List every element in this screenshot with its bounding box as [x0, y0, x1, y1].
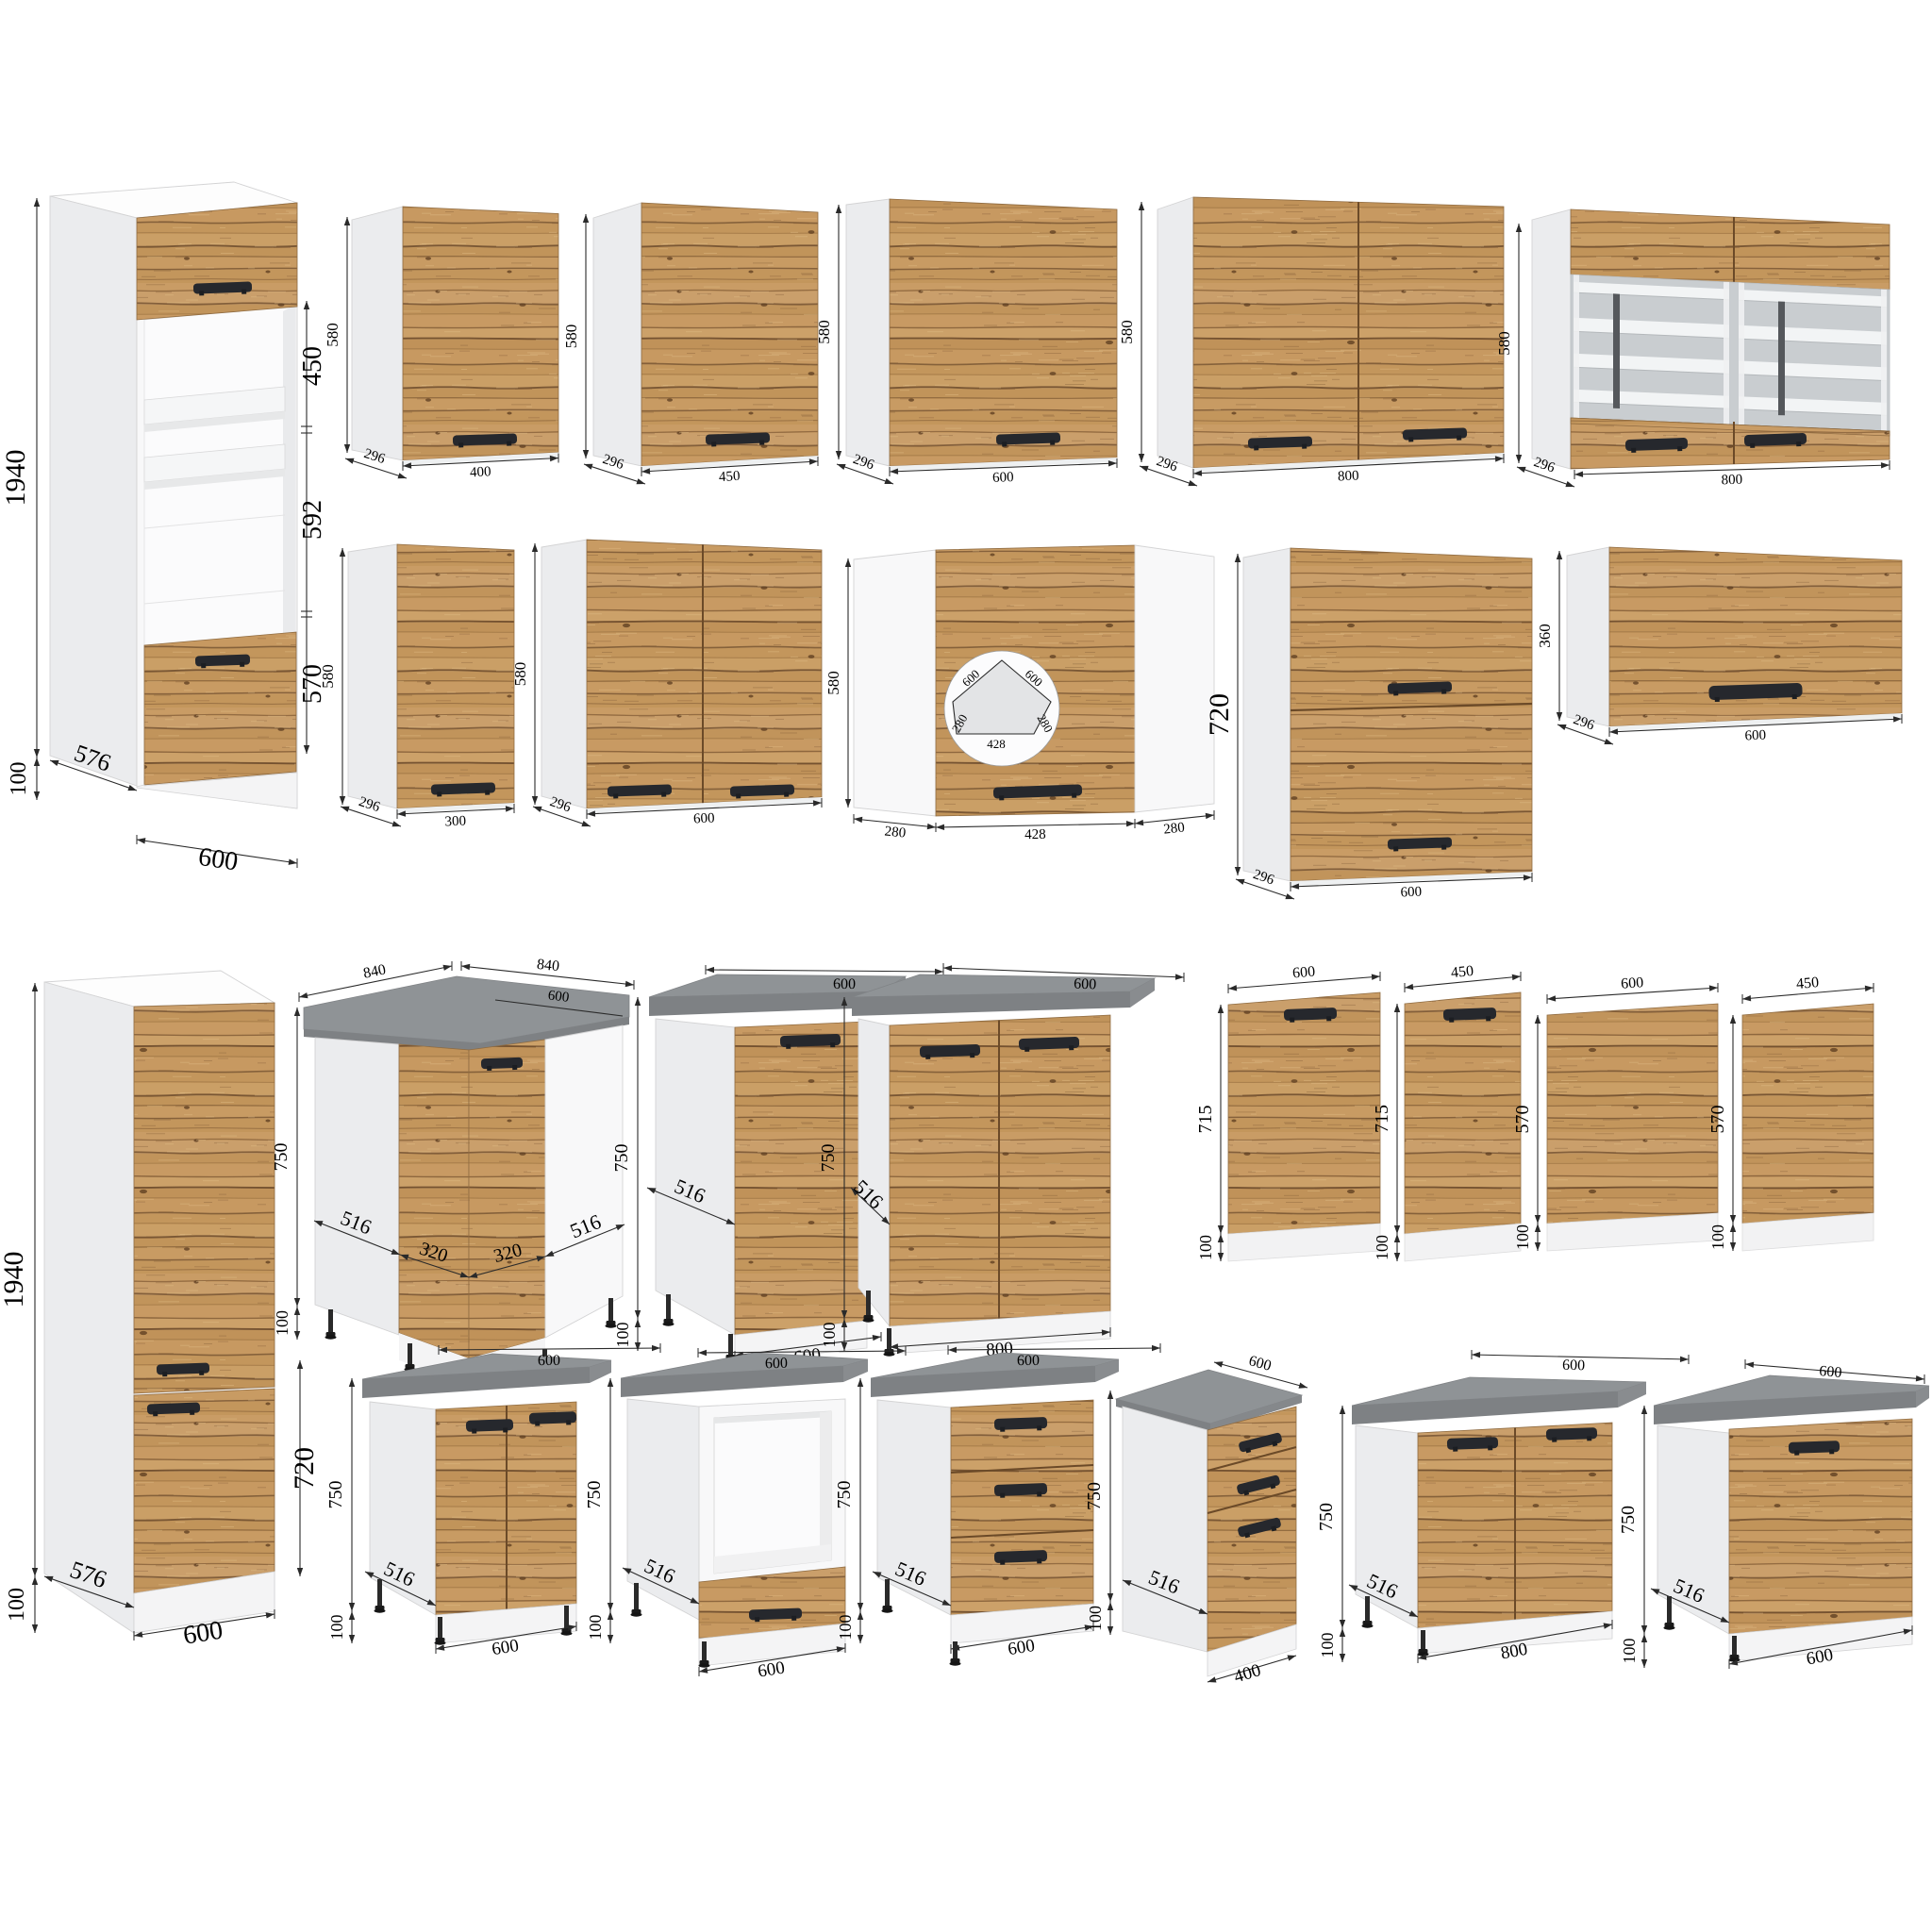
svg-text:750: 750 [1316, 1503, 1337, 1531]
svg-text:750: 750 [834, 1481, 855, 1509]
svg-text:100: 100 [820, 1323, 839, 1348]
svg-text:600: 600 [491, 1636, 520, 1659]
svg-text:750: 750 [1084, 1482, 1105, 1510]
svg-text:600: 600 [1291, 964, 1315, 982]
svg-text:580: 580 [511, 662, 529, 687]
svg-text:400: 400 [470, 464, 491, 480]
svg-text:428: 428 [1024, 827, 1046, 842]
svg-text:100: 100 [5, 1588, 29, 1622]
svg-text:750: 750 [818, 1144, 839, 1173]
svg-text:750: 750 [1618, 1506, 1639, 1534]
svg-text:580: 580 [1118, 320, 1136, 344]
svg-text:600: 600 [1400, 885, 1422, 901]
svg-text:100: 100 [1708, 1224, 1727, 1250]
svg-text:280: 280 [884, 824, 907, 841]
svg-text:100: 100 [7, 762, 31, 796]
svg-text:580: 580 [1495, 331, 1513, 356]
svg-text:600: 600 [1621, 974, 1644, 992]
svg-text:600: 600 [1017, 1353, 1040, 1369]
svg-text:600: 600 [833, 976, 856, 992]
svg-text:600: 600 [181, 1616, 225, 1651]
svg-text:100: 100 [1373, 1235, 1391, 1260]
svg-text:570: 570 [1512, 1106, 1533, 1134]
svg-text:750: 750 [611, 1144, 632, 1173]
svg-text:800: 800 [1338, 468, 1359, 484]
svg-text:600: 600 [757, 1657, 786, 1681]
svg-text:600: 600 [1562, 1357, 1585, 1374]
svg-text:600: 600 [538, 1353, 560, 1369]
svg-text:100: 100 [327, 1615, 346, 1641]
svg-text:580: 580 [815, 320, 833, 344]
svg-text:600: 600 [1007, 1636, 1036, 1659]
svg-text:750: 750 [584, 1481, 605, 1509]
svg-text:580: 580 [324, 323, 341, 347]
svg-text:720: 720 [1204, 693, 1235, 736]
svg-text:280: 280 [1163, 820, 1186, 837]
svg-text:450: 450 [298, 346, 327, 386]
svg-text:100: 100 [1620, 1639, 1639, 1664]
svg-text:100: 100 [836, 1615, 855, 1641]
svg-text:715: 715 [1195, 1106, 1216, 1134]
svg-text:600: 600 [765, 1356, 788, 1372]
svg-text:592: 592 [298, 500, 327, 540]
svg-text:600: 600 [693, 810, 715, 826]
svg-text:750: 750 [325, 1481, 346, 1509]
svg-text:300: 300 [444, 813, 466, 829]
svg-text:1940: 1940 [0, 450, 31, 507]
svg-text:100: 100 [1318, 1633, 1337, 1658]
svg-text:800: 800 [1721, 473, 1742, 489]
svg-text:600: 600 [196, 842, 240, 877]
svg-text:100: 100 [1513, 1224, 1532, 1250]
svg-text:450: 450 [719, 469, 741, 485]
svg-text:840: 840 [536, 957, 560, 975]
svg-text:580: 580 [319, 664, 337, 689]
svg-text:100: 100 [586, 1615, 605, 1641]
svg-text:580: 580 [562, 325, 580, 349]
svg-text:100: 100 [1086, 1606, 1105, 1631]
svg-text:720: 720 [289, 1447, 320, 1490]
svg-text:600: 600 [1819, 1363, 1842, 1381]
svg-text:750: 750 [271, 1143, 291, 1172]
svg-text:100: 100 [1196, 1235, 1215, 1260]
svg-text:100: 100 [613, 1323, 632, 1348]
svg-text:580: 580 [824, 671, 842, 695]
svg-text:360: 360 [1536, 624, 1554, 648]
svg-text:715: 715 [1372, 1105, 1392, 1133]
svg-text:600: 600 [1074, 976, 1097, 993]
svg-text:570: 570 [1707, 1106, 1728, 1134]
svg-text:600: 600 [1744, 728, 1766, 744]
svg-text:600: 600 [547, 988, 570, 1006]
svg-text:428: 428 [987, 737, 1006, 751]
svg-text:450: 450 [1450, 963, 1474, 981]
svg-text:600: 600 [992, 470, 1014, 486]
svg-text:100: 100 [273, 1310, 291, 1336]
svg-text:1940: 1940 [0, 1252, 29, 1308]
svg-text:450: 450 [1795, 974, 1819, 992]
